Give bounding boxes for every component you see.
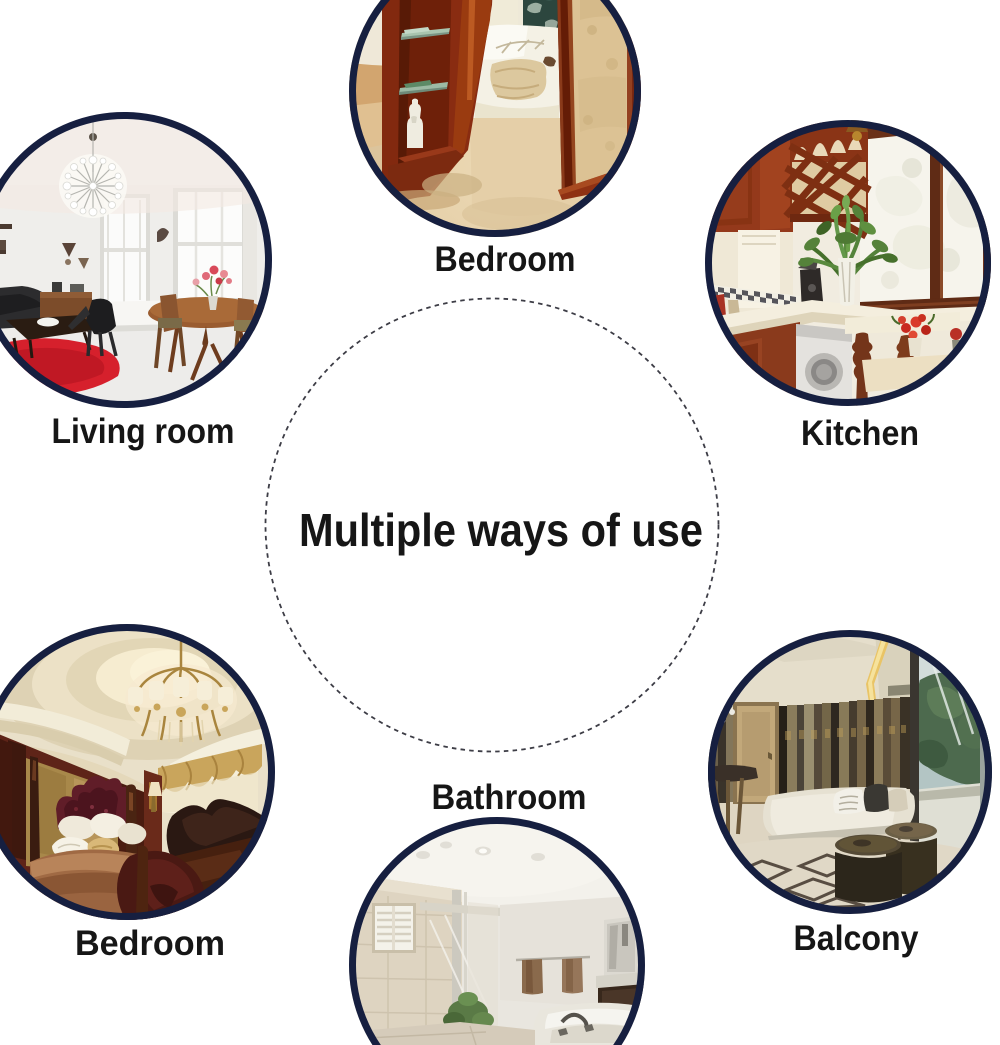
svg-text:Living room: Living room	[52, 412, 235, 451]
svg-text:Multiple ways of use: Multiple ways of use	[299, 504, 703, 556]
svg-text:Bedroom: Bedroom	[435, 240, 576, 279]
svg-text:Bedroom: Bedroom	[75, 924, 225, 963]
svg-text:Kitchen: Kitchen	[801, 414, 919, 453]
svg-text:Balcony: Balcony	[794, 919, 919, 958]
svg-text:Bathroom: Bathroom	[432, 778, 587, 817]
